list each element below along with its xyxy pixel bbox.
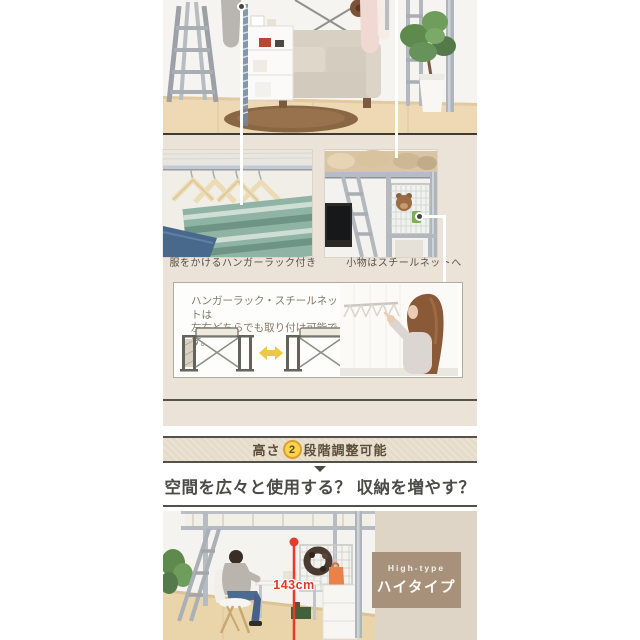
- product-promo-page: 服をかけるハンガーラック付き 小物はスチールネットへ ハンガーラック・スチールネ…: [0, 0, 640, 640]
- banner-prefix: 高さ: [252, 440, 280, 459]
- headline-divider-line: [163, 505, 477, 507]
- section-headline: 空間を広々と使用する？ 収納を増やす？: [163, 474, 477, 498]
- type-label-en: High-type: [388, 563, 445, 573]
- hanger-rack-scene: [163, 150, 312, 257]
- triangle-down-icon: [314, 466, 326, 472]
- room-overview-photo: [163, 0, 477, 135]
- hanger-rack-caption: 服をかけるハンガーラック付き: [163, 257, 323, 271]
- features-section: 服をかけるハンガーラック付き 小物はスチールネットへ ハンガーラック・スチールネ…: [163, 135, 477, 426]
- banner-suffix: 段階調整可能: [304, 440, 388, 459]
- callout-line-net: [395, 0, 398, 158]
- type-label-ja: ハイタイプ: [377, 576, 456, 597]
- woman-pointing-photo: [340, 284, 458, 376]
- high-type-label-box: High-type ハイタイプ: [372, 552, 461, 608]
- high-type-photo: 143cm: [163, 511, 375, 640]
- hanger-rack-photo: [163, 150, 312, 257]
- steel-net-photo: [325, 150, 437, 257]
- step-number-badge: 2: [283, 440, 302, 459]
- room-overview-scene: [163, 0, 477, 133]
- section-divider-line: [163, 399, 477, 401]
- high-type-scene: [163, 511, 375, 640]
- steel-net-scene: [325, 150, 437, 257]
- content-column: 服をかけるハンガーラック付き 小物はスチールネットへ ハンガーラック・スチールネ…: [163, 0, 477, 640]
- mounting-info-line1: ハンガーラック・スチールネットは: [191, 295, 341, 322]
- height-adjust-banner: 高さ 2 段階調整可能: [163, 436, 477, 463]
- frame-swap-diagram: [180, 327, 360, 375]
- callout-line-hanger: [240, 9, 243, 205]
- height-measurement-label: 143cm: [264, 578, 324, 592]
- swap-arrow-icon: [259, 346, 283, 360]
- high-type-section: 143cm High-type ハイタイプ: [163, 511, 477, 640]
- mounting-info-box: ハンガーラック・スチールネットは 左右どちらでも取り付け可能です。: [173, 282, 463, 378]
- callout-connector-vertical: [443, 215, 446, 282]
- steel-net-caption: 小物はスチールネットへ: [331, 257, 477, 271]
- measure-pin-icon: [290, 538, 299, 547]
